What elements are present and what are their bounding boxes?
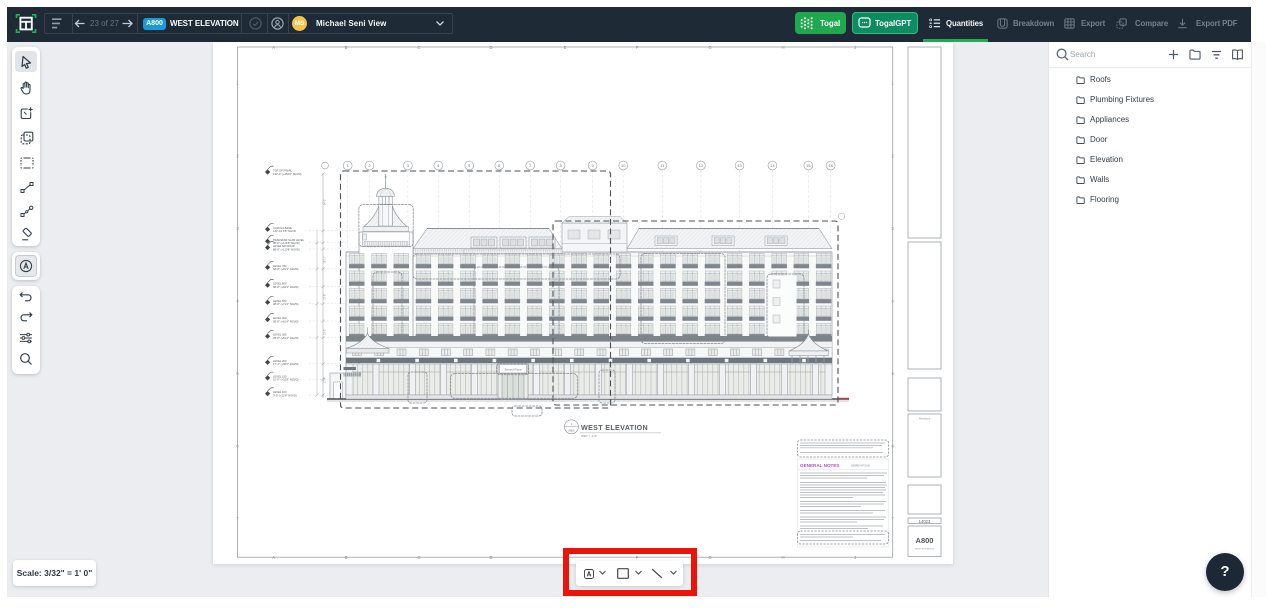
svg-text:38'-8" (+61'4" NGVD): 38'-8" (+61'4" NGVD)	[273, 319, 299, 323]
svg-text:132'-0" (+154'0" NGVD): 132'-0" (+154'0" NGVD)	[273, 172, 302, 176]
svg-text:88'-8" (+110'8" NGVD): 88'-8" (+110'8" NGVD)	[273, 247, 300, 251]
svg-text:2: 2	[368, 163, 371, 168]
svg-text:7: 7	[892, 516, 895, 521]
svg-text:ABBREVIATIONS: ABBREVIATIONS	[851, 465, 870, 468]
svg-text:B: B	[345, 45, 348, 50]
svg-text:0'-0" (+22'8" NGVD): 0'-0" (+22'8" NGVD)	[273, 393, 297, 397]
svg-text:10'-0": 10'-0"	[324, 329, 327, 335]
svg-text:3: 3	[236, 226, 239, 231]
svg-text:C: C	[417, 45, 420, 50]
svg-text:2: 2	[892, 154, 895, 159]
svg-text:1: 1	[571, 422, 573, 426]
svg-text:16: 16	[828, 163, 833, 168]
svg-text:9: 9	[591, 163, 594, 168]
svg-text:14023: 14023	[919, 519, 931, 524]
svg-text:J: J	[854, 45, 856, 50]
svg-text:D: D	[489, 555, 492, 560]
svg-text:D: D	[489, 45, 492, 50]
svg-text:13: 13	[737, 163, 742, 168]
svg-text:A: A	[272, 555, 275, 560]
svg-text:1: 1	[347, 163, 350, 168]
svg-text:58'-8" (+81'4" NGVD): 58'-8" (+81'4" NGVD)	[273, 285, 299, 289]
svg-text:C: C	[417, 555, 420, 560]
svg-text:A: A	[272, 45, 275, 50]
svg-text:G: G	[708, 555, 711, 560]
svg-text:Revisions: Revisions	[919, 417, 931, 421]
svg-text:3: 3	[892, 226, 895, 231]
svg-text:A800: A800	[916, 536, 934, 545]
svg-text:19'-11": 19'-11"	[324, 256, 327, 263]
svg-text:4: 4	[236, 299, 239, 304]
svg-text:6: 6	[892, 444, 895, 449]
svg-text:7: 7	[529, 163, 532, 168]
svg-text:122'-10 7/8" NGVD: 122'-10 7/8" NGVD	[273, 229, 296, 233]
svg-text:4: 4	[437, 163, 440, 168]
svg-text:2: 2	[236, 154, 239, 159]
svg-text:4: 4	[892, 299, 895, 304]
svg-text:10'-0": 10'-0"	[324, 294, 327, 300]
svg-text:10'-0" (+32'8" NGVD): 10'-0" (+32'8" NGVD)	[273, 378, 299, 382]
svg-text:E: E	[564, 45, 567, 50]
svg-text:17'-4" (+40'0" NGVD): 17'-4" (+40'0" NGVD)	[273, 362, 299, 366]
svg-text:3: 3	[407, 163, 410, 168]
svg-text:6: 6	[236, 444, 239, 449]
svg-text:WEST ELEVATION: WEST ELEVATION	[915, 548, 934, 551]
svg-text:B: B	[345, 555, 348, 560]
svg-text:J: J	[854, 555, 856, 560]
svg-text:WEST ELEVATION: WEST ELEVATION	[581, 423, 648, 432]
svg-text:5: 5	[892, 371, 895, 376]
svg-text:28'-8" (+51'4" NGVD): 28'-8" (+51'4" NGVD)	[273, 336, 299, 340]
svg-text:12: 12	[699, 163, 704, 168]
svg-text:3/32" = 1'-0": 3/32" = 1'-0"	[581, 434, 597, 438]
svg-text:11: 11	[660, 163, 665, 168]
svg-text:1: 1	[892, 81, 895, 86]
svg-text:H: H	[781, 45, 784, 50]
svg-text:68'-8" (+91'4" NGVD): 68'-8" (+91'4" NGVD)	[273, 267, 299, 271]
svg-text:F: F	[636, 45, 639, 50]
svg-text:7: 7	[236, 516, 239, 521]
svg-text:10: 10	[621, 163, 626, 168]
svg-text:54'-2": 54'-2"	[324, 199, 327, 205]
svg-text:A800: A800	[568, 429, 575, 433]
svg-text:48'-8" (+71'4" NGVD): 48'-8" (+71'4" NGVD)	[273, 302, 299, 306]
svg-text:H: H	[781, 555, 784, 560]
svg-text:14: 14	[770, 163, 775, 168]
svg-text:17'-4": 17'-4"	[324, 377, 327, 383]
svg-text:GENERAL NOTES: GENERAL NOTES	[800, 463, 839, 468]
svg-text:1: 1	[236, 81, 239, 86]
svg-text:G: G	[708, 45, 711, 50]
svg-text:5: 5	[236, 371, 239, 376]
svg-text:5: 5	[468, 163, 471, 168]
svg-text:6: 6	[498, 163, 501, 168]
svg-text:8: 8	[559, 163, 562, 168]
svg-text:Barnett Plaza: Barnett Plaza	[505, 367, 522, 371]
svg-text:15: 15	[806, 163, 811, 168]
